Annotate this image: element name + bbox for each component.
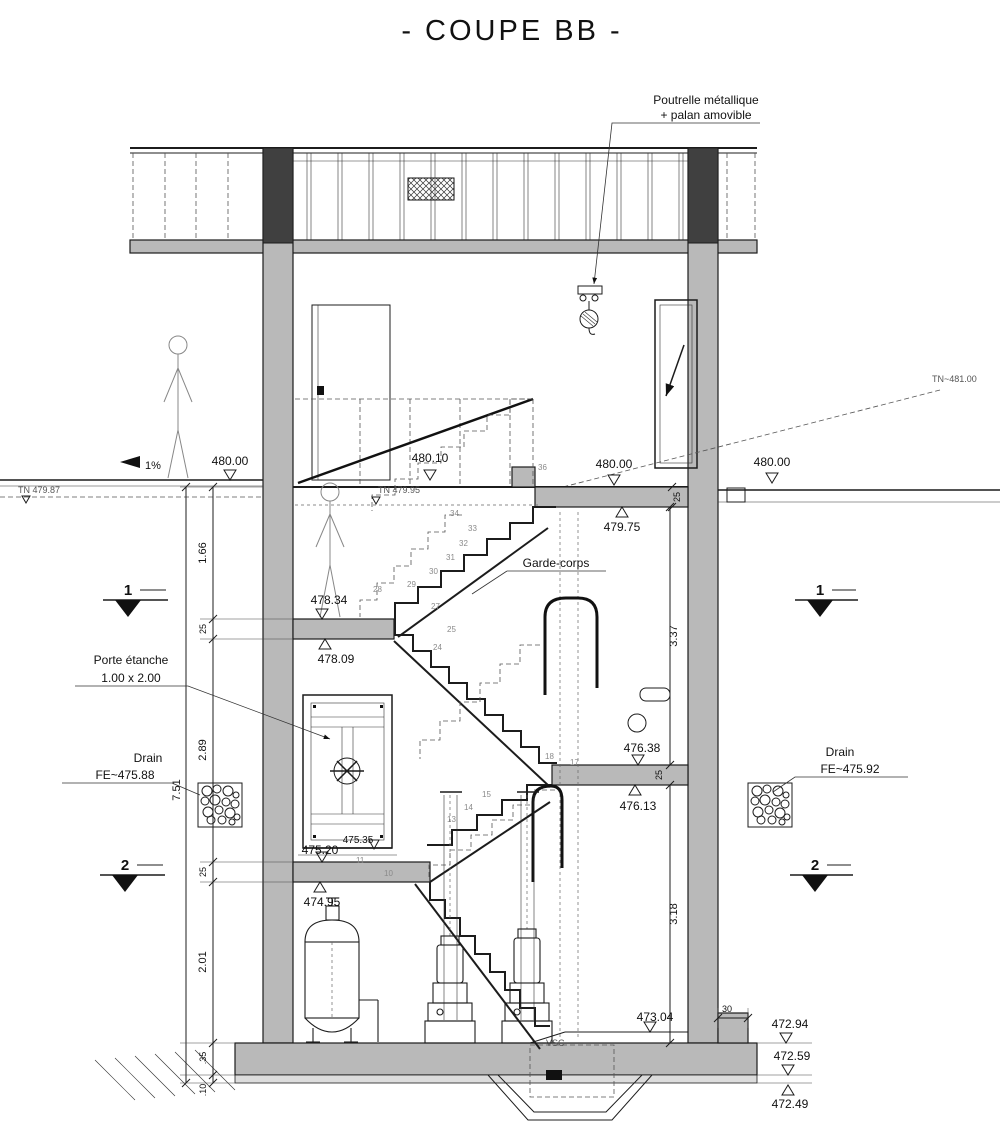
pipes: [628, 688, 670, 732]
level-475-20: 475.20: [302, 843, 339, 857]
level-479-75: 479.75: [604, 520, 641, 534]
svg-text:.35: .35: [198, 1052, 208, 1065]
svg-text:2: 2: [811, 857, 819, 874]
svg-text:7.51: 7.51: [171, 779, 183, 800]
svg-text:33: 33: [468, 524, 477, 533]
svg-text:3.37: 3.37: [668, 625, 680, 646]
svg-text:25: 25: [672, 492, 682, 502]
door-wheel-icon: [330, 761, 364, 781]
door-handle: [317, 386, 324, 395]
section-1-left: 1: [103, 582, 168, 617]
section-markers: 1 1 2 2: [100, 582, 858, 892]
svg-text:30: 30: [722, 1004, 732, 1014]
guardrail-upper: [545, 598, 597, 695]
level-476-13: 476.13: [620, 799, 657, 813]
porte-etanche-label-2: 1.00 x 2.00: [101, 671, 161, 685]
svg-text:32: 32: [459, 539, 468, 548]
section-drawing-svg: - COUPE BB -: [0, 0, 1000, 1131]
svg-text:24: 24: [433, 643, 442, 652]
right-wall: [688, 148, 718, 1043]
svg-text:.10: .10: [198, 1084, 208, 1097]
hoist-trolley: [578, 286, 602, 334]
svg-text:34: 34: [450, 509, 459, 518]
ceiling-slab: [130, 240, 757, 253]
garde-corps-label: Garde-corps: [523, 556, 590, 570]
section-2-left: 2: [100, 857, 165, 892]
figure-exterior: [164, 336, 192, 478]
pressure-tank: [305, 898, 378, 1042]
drain-left-label-2: FE~475.88: [95, 768, 154, 782]
porte-etanche-label-1: Porte étanche: [94, 653, 169, 667]
coupe-bb-drawing: - COUPE BB -: [0, 0, 1000, 1131]
base-slab: [235, 1043, 757, 1075]
guardrails: [533, 598, 597, 882]
svg-text:36: 36: [538, 463, 547, 472]
superstructure: [130, 148, 757, 253]
svg-text:28: 28: [373, 585, 382, 594]
tn-left: TN 479.87: [18, 485, 60, 495]
svg-text:25: 25: [447, 625, 456, 634]
svg-text:25: 25: [198, 624, 208, 634]
svg-text:30: 30: [429, 567, 438, 576]
stair-flights: [394, 507, 557, 1049]
drain-right-label-1: Drain: [826, 745, 855, 759]
level-472-59: 472.59: [774, 1049, 811, 1063]
drain-left-label-1: Drain: [134, 751, 163, 765]
svg-text:27: 27: [431, 602, 440, 611]
svg-text:11: 11: [356, 856, 365, 865]
landing-475: [293, 862, 430, 882]
guardrail-lower: [533, 786, 562, 882]
slope-arrow-icon: [120, 456, 140, 468]
airflow-arrow: [666, 345, 684, 396]
svg-text:2.01: 2.01: [197, 951, 209, 972]
svg-text:1.66: 1.66: [197, 542, 209, 563]
level-476-38: 476.38: [624, 741, 661, 755]
svg-text:15: 15: [482, 790, 491, 799]
level-ext-left: 480.00: [212, 454, 249, 468]
level-478-34: 478.34: [311, 593, 348, 607]
svg-text:2: 2: [121, 857, 129, 874]
svg-text:13: 13: [447, 815, 456, 824]
svg-text:25: 25: [654, 770, 664, 780]
vent-grille: [408, 178, 454, 200]
svg-text:18: 18: [545, 752, 554, 761]
svg-text:1: 1: [124, 582, 132, 599]
drain-gravel-left: [198, 783, 242, 827]
tn-right: TN~481.00: [932, 374, 977, 384]
landing-478: [293, 619, 394, 639]
level-472-94: 472.94: [772, 1017, 809, 1031]
drain-gravel-right: [748, 783, 792, 827]
drain-right-label-2: FE~475.92: [820, 762, 879, 776]
annotations: Poutrelle métallique + palan amovible Ga…: [62, 93, 908, 795]
slope-label: 1%: [145, 460, 161, 472]
level-472-49: 472.49: [772, 1097, 809, 1111]
svg-text:31: 31: [446, 553, 455, 562]
drawing-title: - COUPE BB -: [401, 15, 622, 47]
svg-text:10: 10: [384, 869, 393, 878]
svg-text:3.18: 3.18: [668, 903, 680, 924]
level-478-09: 478.09: [318, 652, 355, 666]
terrain-labels: TN 479.87 TN 479.95 TN~481.00: [18, 374, 977, 505]
left-wall: [263, 148, 293, 1043]
level-474-95: 474.95: [304, 895, 341, 909]
watertight-door: [298, 695, 397, 855]
grade-right: [563, 390, 1000, 502]
poutrelle-label-1: Poutrelle métallique: [653, 93, 759, 107]
lean-concrete: [235, 1075, 757, 1083]
level-ext-right: 480.00: [754, 455, 791, 469]
svg-text:17: 17: [570, 758, 579, 767]
section-1-right: 1: [795, 582, 858, 617]
section-2-right: 2: [790, 857, 853, 892]
tn-mid: TN 479.95: [378, 485, 420, 495]
level-mid: 480.10: [412, 451, 449, 465]
upper-landing-slab: [535, 487, 688, 507]
svg-text:2.89: 2.89: [197, 739, 209, 760]
svg-text:25: 25: [198, 867, 208, 877]
svg-text:29: 29: [407, 580, 416, 589]
stair-stringer-above: [298, 399, 533, 483]
poutrelle-label-2: + palan amovible: [660, 108, 751, 122]
svg-text:1: 1: [816, 582, 824, 599]
level-int-right: 480.00: [596, 457, 633, 471]
svg-text:14: 14: [464, 803, 473, 812]
terrain-line: [563, 390, 940, 487]
